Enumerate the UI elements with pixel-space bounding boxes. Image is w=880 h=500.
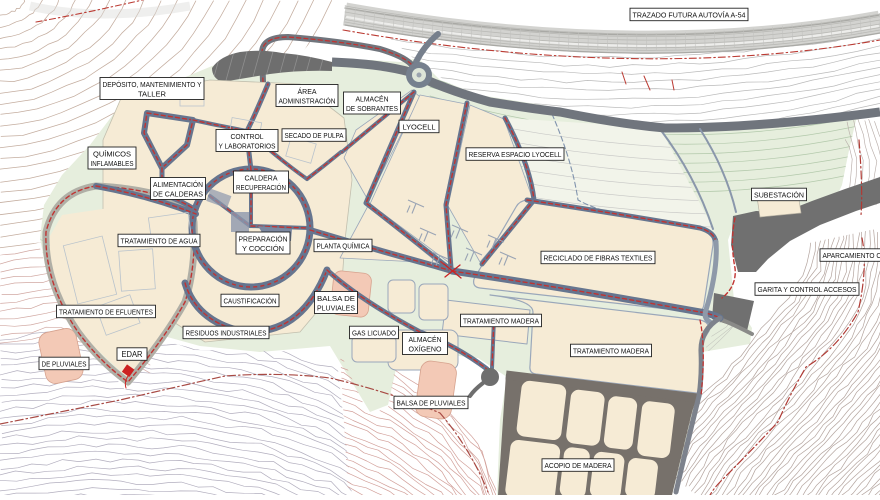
svg-text:LYOCELL: LYOCELL — [403, 123, 436, 132]
svg-text:PLUVIALES: PLUVIALES — [317, 303, 355, 312]
svg-text:TRAZADO FUTURA AUTOVÍA A-54: TRAZADO FUTURA AUTOVÍA A-54 — [633, 11, 746, 20]
svg-text:ALMACÉN: ALMACÉN — [409, 335, 442, 344]
svg-text:GAS LICUADO: GAS LICUADO — [352, 329, 396, 338]
svg-text:DEPÓSITO, MANTENIMIENTO Y: DEPÓSITO, MANTENIMIENTO Y — [103, 80, 202, 89]
svg-text:CALDERA: CALDERA — [245, 173, 279, 182]
svg-text:CONTROL: CONTROL — [231, 132, 264, 141]
svg-text:OXÍGENO: OXÍGENO — [409, 344, 442, 353]
svg-text:RECUPERACIÓN: RECUPERACIÓN — [236, 183, 286, 192]
svg-text:RESERVA ESPACIO LYOCELL: RESERVA ESPACIO LYOCELL — [469, 150, 562, 159]
svg-text:EDAR: EDAR — [122, 349, 143, 359]
svg-text:TRATAMIENTO MADERA: TRATAMIENTO MADERA — [573, 347, 650, 356]
svg-text:DE PLUVIALES: DE PLUVIALES — [42, 360, 87, 369]
svg-text:RECICLADO DE FIBRAS TEXTILES: RECICLADO DE FIBRAS TEXTILES — [544, 254, 653, 263]
svg-text:QUÍMICOS: QUÍMICOS — [93, 149, 131, 158]
svg-text:TRATAMIENTO DE EFLUENTES: TRATAMIENTO DE EFLUENTES — [59, 308, 153, 317]
svg-text:CAUSTIFICACIÓN: CAUSTIFICACIÓN — [224, 297, 277, 306]
svg-text:TRATAMIENTO DE AGUA: TRATAMIENTO DE AGUA — [121, 237, 199, 246]
svg-text:BALSA DE PLUVIALES: BALSA DE PLUVIALES — [397, 399, 466, 408]
svg-text:ADMINISTRACIÓN: ADMINISTRACIÓN — [279, 96, 336, 105]
svg-text:TRATAMIENTO MADERA: TRATAMIENTO MADERA — [463, 317, 540, 326]
svg-text:APARCAMIENTO CA: APARCAMIENTO CA — [823, 251, 880, 260]
svg-text:DE CALDERAS: DE CALDERAS — [153, 189, 203, 198]
svg-text:DE SOBRANTES: DE SOBRANTES — [346, 104, 398, 113]
svg-text:ALMACÉN: ALMACÉN — [356, 94, 389, 103]
svg-text:PLANTA QUÍMICA: PLANTA QUÍMICA — [317, 242, 371, 251]
svg-text:INFLAMABLES: INFLAMABLES — [91, 159, 134, 168]
svg-text:Y LABORATORIOS: Y LABORATORIOS — [219, 141, 276, 150]
svg-text:SECADO DE PULPA: SECADO DE PULPA — [285, 131, 345, 140]
svg-text:ÁREA: ÁREA — [298, 87, 318, 96]
svg-text:SUBESTACIÓN: SUBESTACIÓN — [754, 191, 804, 200]
svg-text:GARITA Y CONTROL ACCESOS: GARITA Y CONTROL ACCESOS — [758, 285, 857, 294]
svg-text:RESIDUOS INDUSTRIALES: RESIDUOS INDUSTRIALES — [186, 329, 267, 338]
svg-text:TALLER: TALLER — [138, 89, 167, 98]
svg-text:Y COCCIÓN: Y COCCIÓN — [242, 244, 284, 253]
svg-text:BALSA DE: BALSA DE — [317, 294, 355, 303]
svg-text:ALIMENTACIÓN: ALIMENTACIÓN — [153, 180, 203, 189]
svg-text:PREPARACIÓN: PREPARACIÓN — [239, 234, 288, 243]
svg-text:ACOPIO DE MADERA: ACOPIO DE MADERA — [545, 461, 613, 470]
